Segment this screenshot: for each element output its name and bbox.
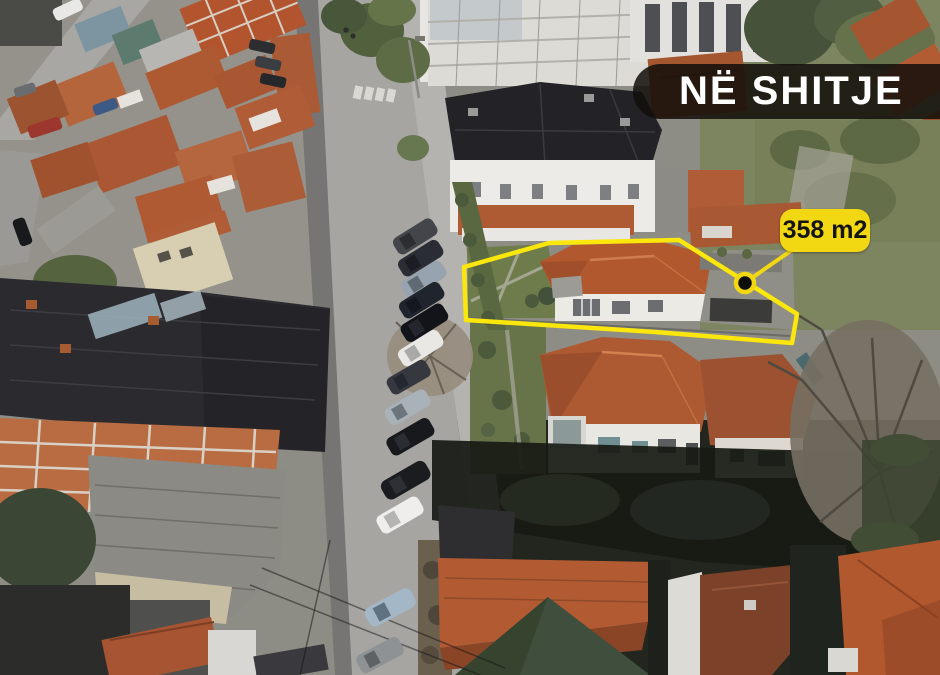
construction-building (420, 0, 654, 86)
aerial-listing-photo: NË SHITJE 358 m2 (0, 0, 940, 675)
area-badge: 358 m2 (780, 209, 870, 252)
for-sale-banner: NË SHITJE (633, 64, 940, 119)
area-marker-dot (736, 274, 754, 292)
